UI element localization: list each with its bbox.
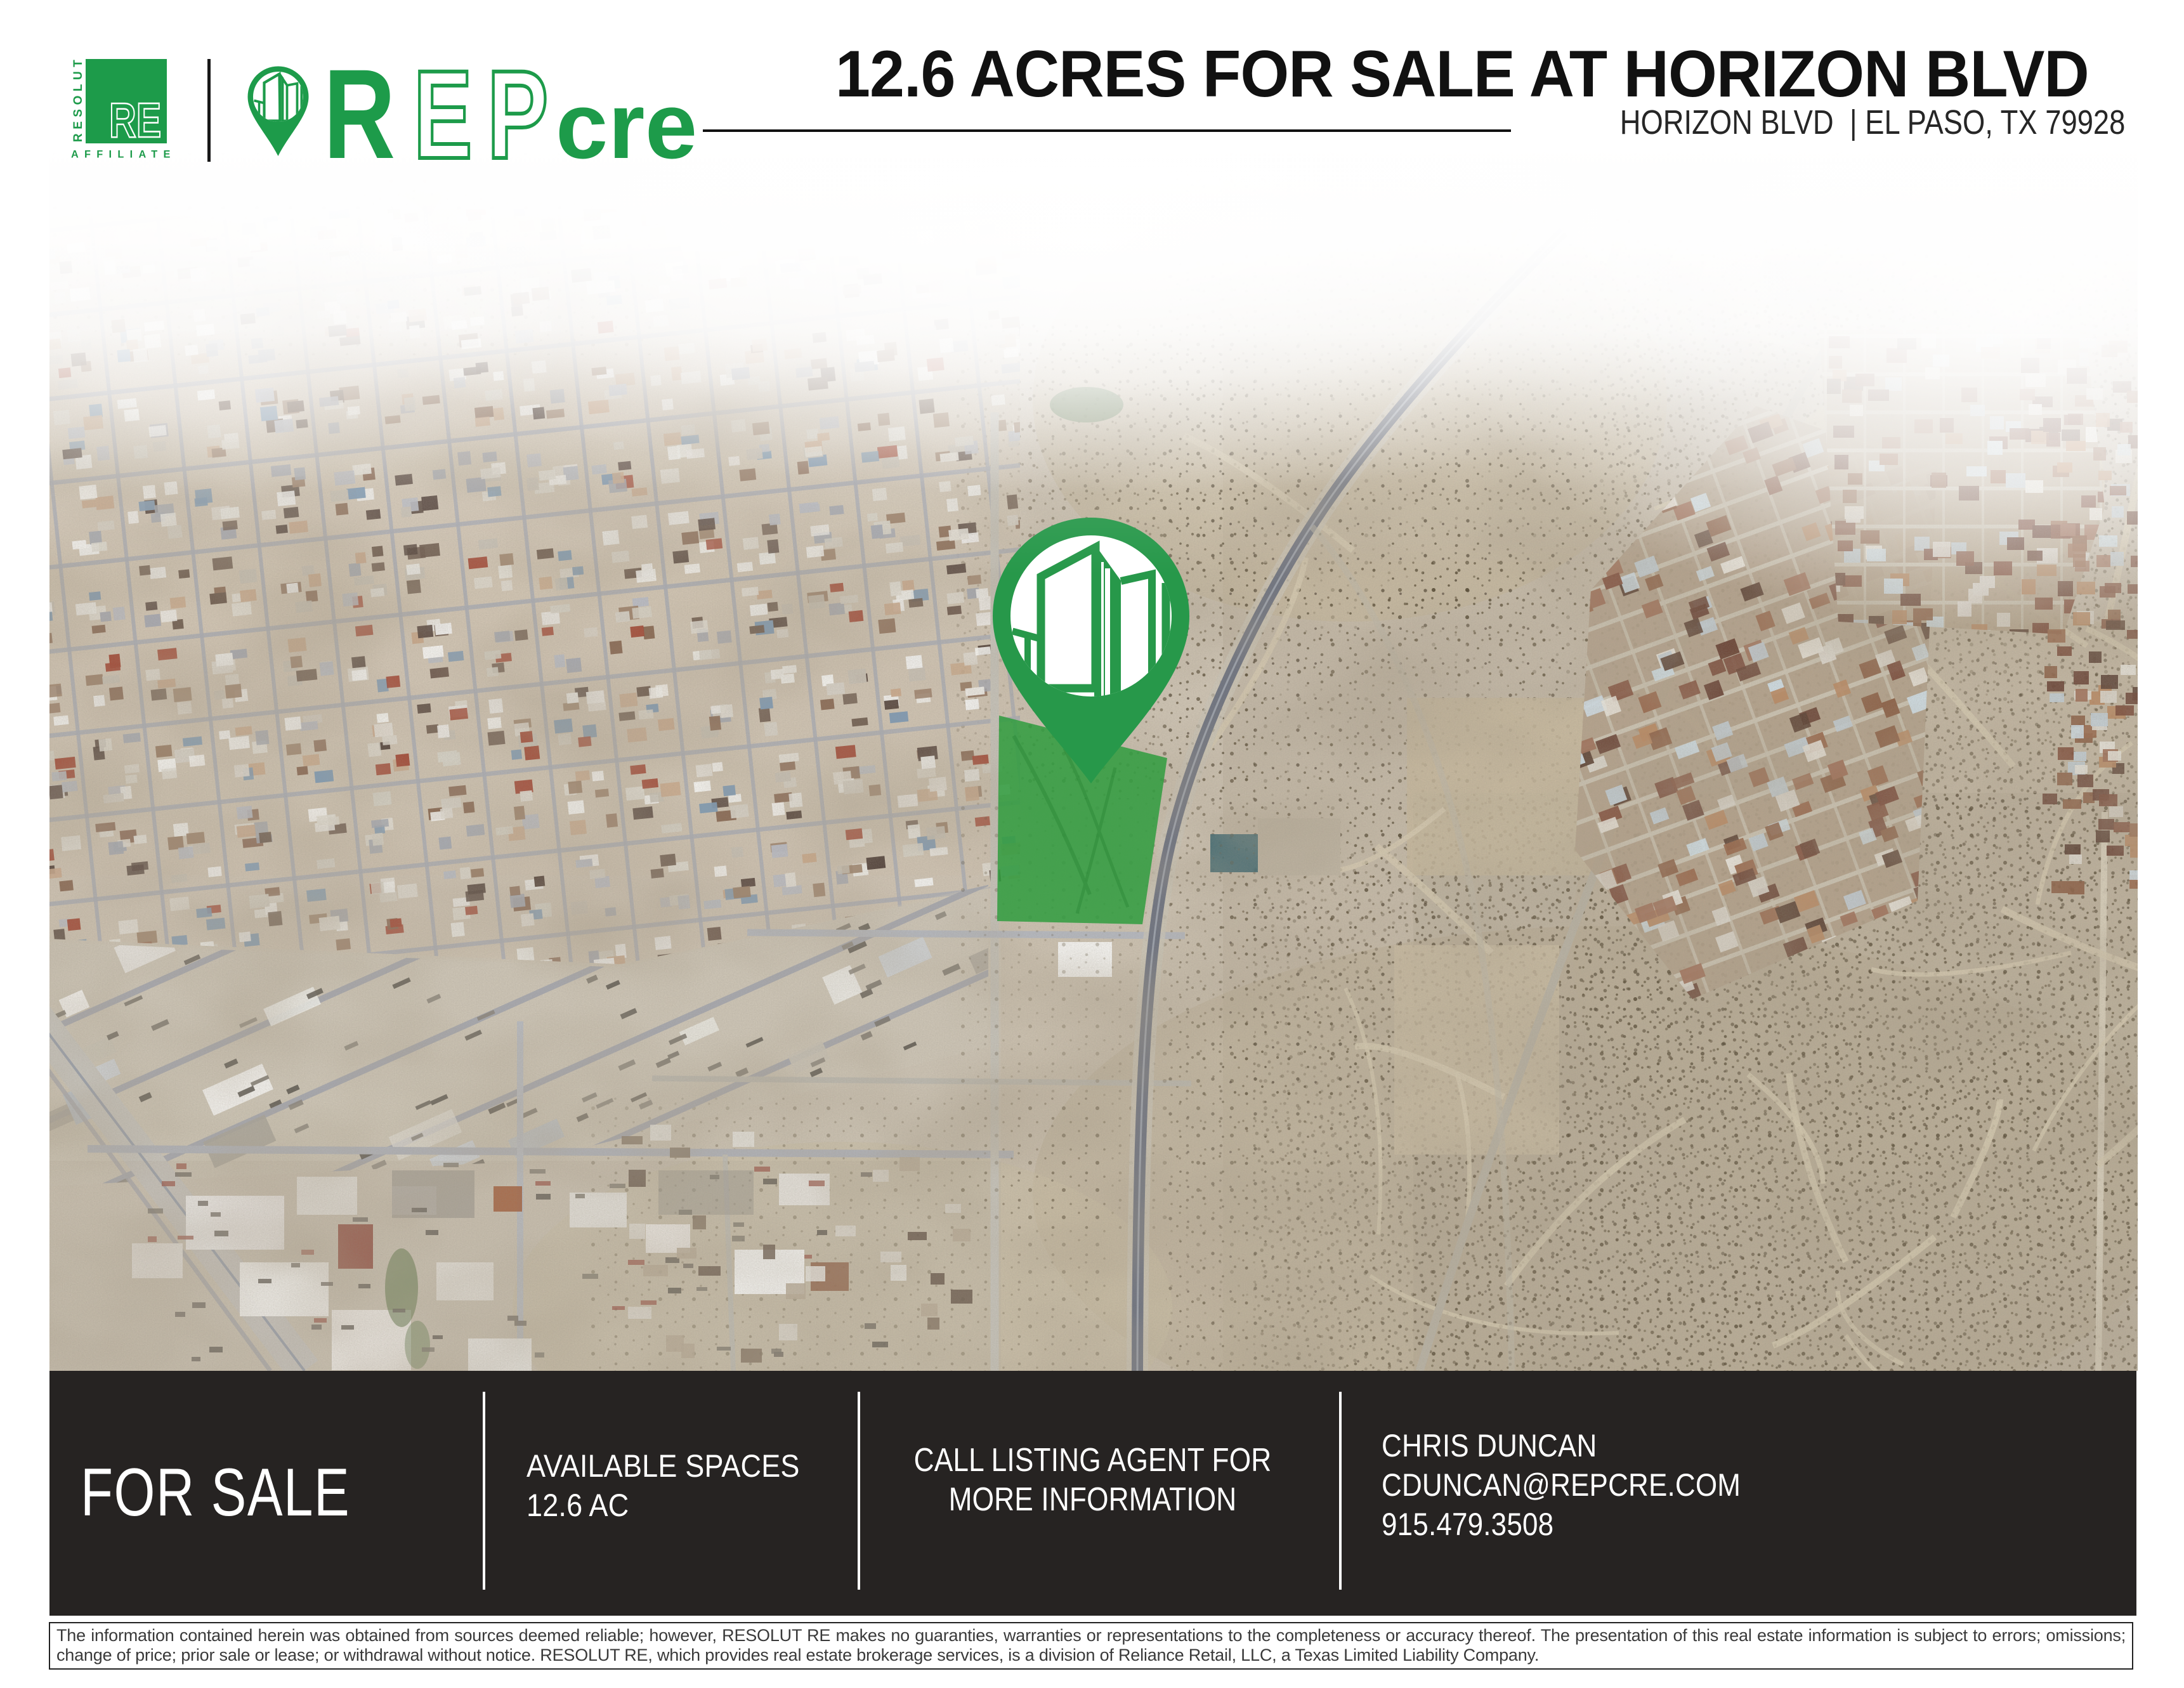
svg-text:RESOLUT: RESOLUT — [72, 56, 85, 142]
svg-text:cre: cre — [556, 74, 698, 178]
svg-text:R: R — [324, 44, 395, 184]
svg-text:P: P — [487, 44, 548, 184]
svg-text:AFFILIATE: AFFILIATE — [71, 149, 176, 160]
svg-text:E: E — [414, 45, 472, 184]
svg-text:RE: RE — [109, 93, 161, 148]
